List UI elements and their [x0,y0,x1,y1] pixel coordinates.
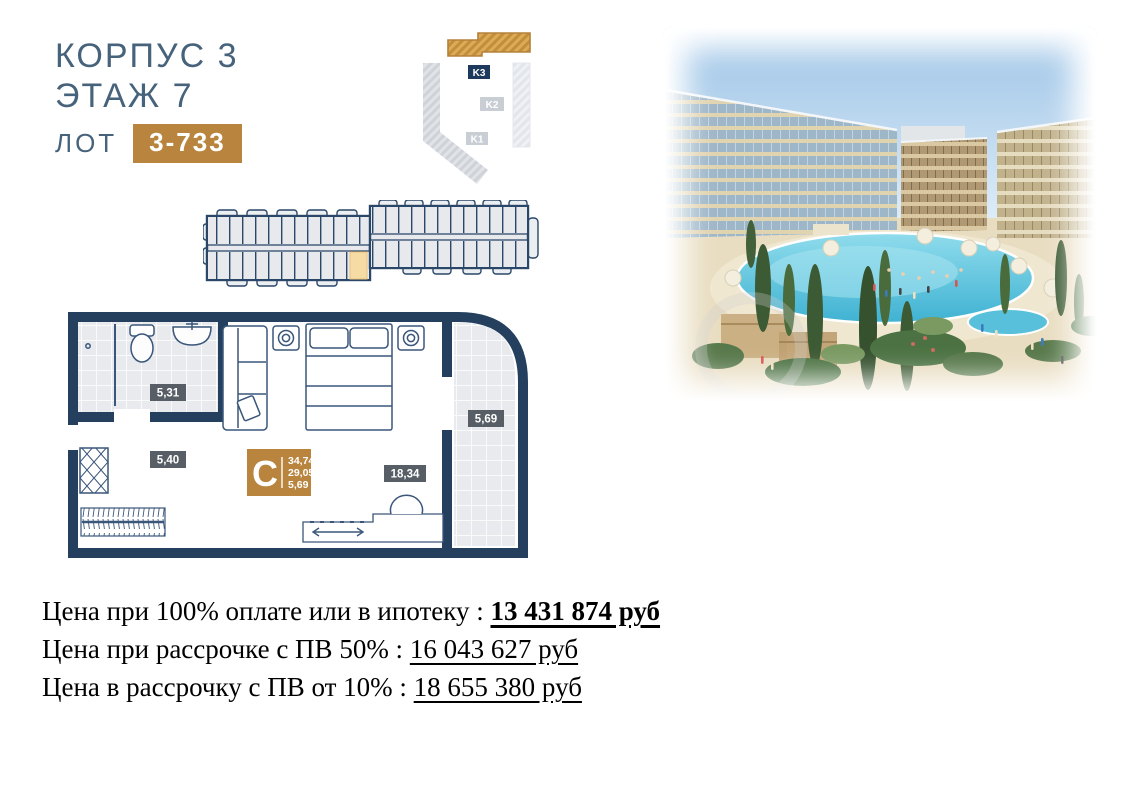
nightstand-right-icon [398,326,424,350]
brochure-page: КОРПУС 3 ЭТАЖ 7 ЛОТ 3-733 [0,0,1122,786]
apartment-type-badge: C 34,74 29,05 5,69 [247,449,314,496]
coat-rack-icon [81,508,165,536]
bathroom-door-gap [114,409,150,424]
price-label: Цена при 100% оплате или в ипотеку : [42,596,484,626]
building-k3-shape-highlighted [448,33,530,56]
svg-text:5,69: 5,69 [475,414,497,426]
site-plan-diagram: K3 K2 K1 [398,18,563,196]
price-line-installment-10: Цена в рассрочку с ПВ от 10% : 18 655 38… [42,668,660,706]
bathroom-area-label: 5,31 [150,384,186,401]
price-value: 18 655 380 руб [414,672,582,702]
price-label: Цена в рассрочку с ПВ от 10% : [42,672,407,702]
wardrobe-icon [80,448,108,493]
right-building [997,118,1095,238]
floor-overview-plan [203,200,540,294]
lot-number-badge: 3-733 [133,124,242,163]
toilet-icon [130,325,154,362]
price-line-full-payment: Цена при 100% оплате или в ипотеку : 13 … [42,592,660,630]
building-wing-right [370,206,528,268]
kitchen-counter-icon [303,514,443,542]
building-wing-left [207,216,370,280]
chair-icon [391,495,423,514]
price-list: Цена при 100% оплате или в ипотеку : 13 … [42,592,660,706]
building-k2-shape [513,63,530,147]
apartment-floor-plan: 5,31 5,40 18,34 5,69 C 34,74 29,05 5,69 [66,310,533,562]
small-pool [968,309,1048,335]
building-title: КОРПУС 3 [55,36,239,76]
lot-row: ЛОТ 3-733 [55,124,242,163]
balcony-floor [454,323,515,546]
price-label: Цена при рассрочке с ПВ 50% : [42,634,403,664]
area-balcony: 5,69 [288,479,309,491]
balcony-area-label: 5,69 [468,410,504,427]
price-value: 13 431 874 руб [490,596,660,626]
living-room-furniture [223,324,443,542]
area-living: 29,05 [288,467,314,479]
bed-icon [306,324,392,430]
area-total: 34,74 [288,455,314,467]
k3-badge-label: K3 [473,68,486,79]
svg-text:5,40: 5,40 [157,455,179,467]
highlighted-unit-cell [350,252,367,279]
building-k1-shape [423,63,488,184]
svg-text:5,31: 5,31 [157,388,180,400]
complex-render-image [663,26,1097,404]
k3-badge: K3 [468,65,490,79]
living-room-area-label: 18,34 [384,465,426,482]
page-title: КОРПУС 3 ЭТАЖ 7 [55,36,239,116]
lot-label: ЛОТ [55,128,117,159]
entry-door-gap [66,425,79,450]
k2-badge: K2 [480,97,504,111]
floor-title: ЭТАЖ 7 [55,76,239,116]
complex-render-photo [663,26,1097,404]
price-line-installment-50: Цена при рассрочке с ПВ 50% : 16 043 627… [42,630,660,668]
cabana [813,224,849,235]
price-value: 16 043 627 руб [410,634,578,664]
k1-badge: K1 [466,132,488,146]
k2-badge-label: K2 [486,100,499,111]
hall-area-label: 5,40 [150,451,186,468]
svg-text:18,34: 18,34 [391,469,420,481]
sofa-icon [223,326,267,430]
nightstand-left-icon [273,326,299,350]
apartment-type-letter: C [252,453,278,494]
center-building [901,138,987,232]
k1-badge-label: K1 [471,135,484,146]
